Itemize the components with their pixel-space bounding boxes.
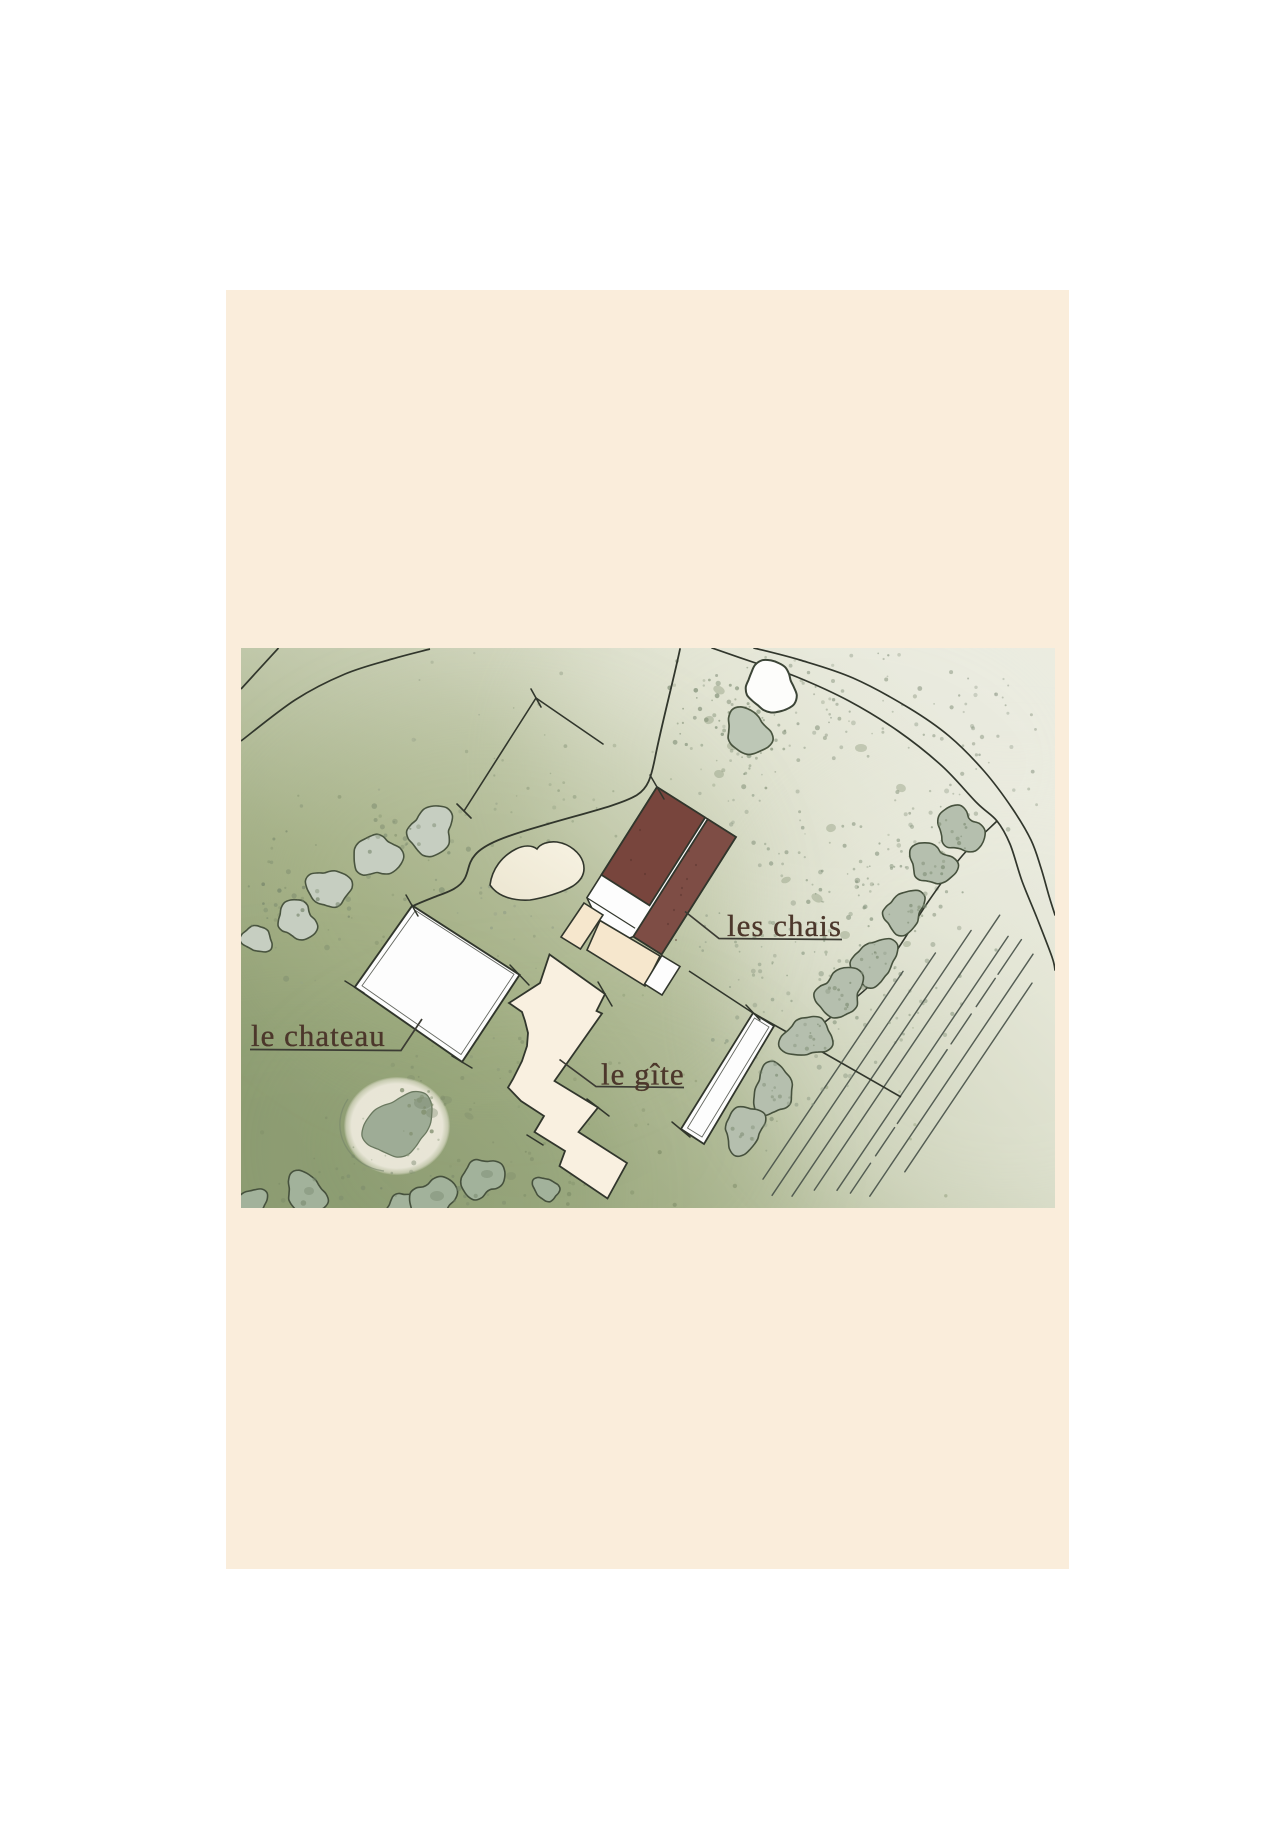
svg-text:le chateau: le chateau [251,1018,386,1053]
svg-text:le gîte: le gîte [601,1057,685,1092]
svg-text:les chais: les chais [727,908,842,943]
